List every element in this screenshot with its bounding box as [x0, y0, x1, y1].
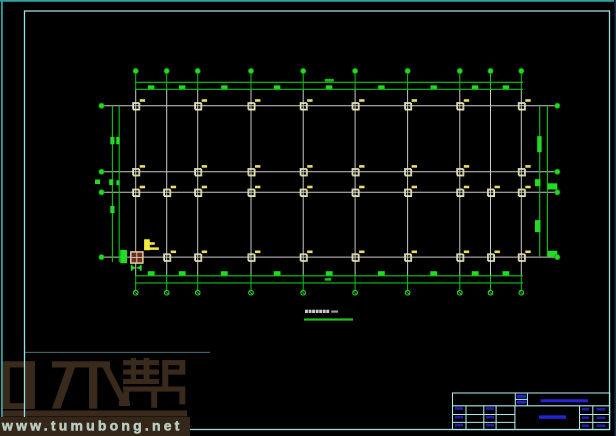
svg-text:www.tumubong.net: www.tumubong.net — [1, 418, 183, 434]
